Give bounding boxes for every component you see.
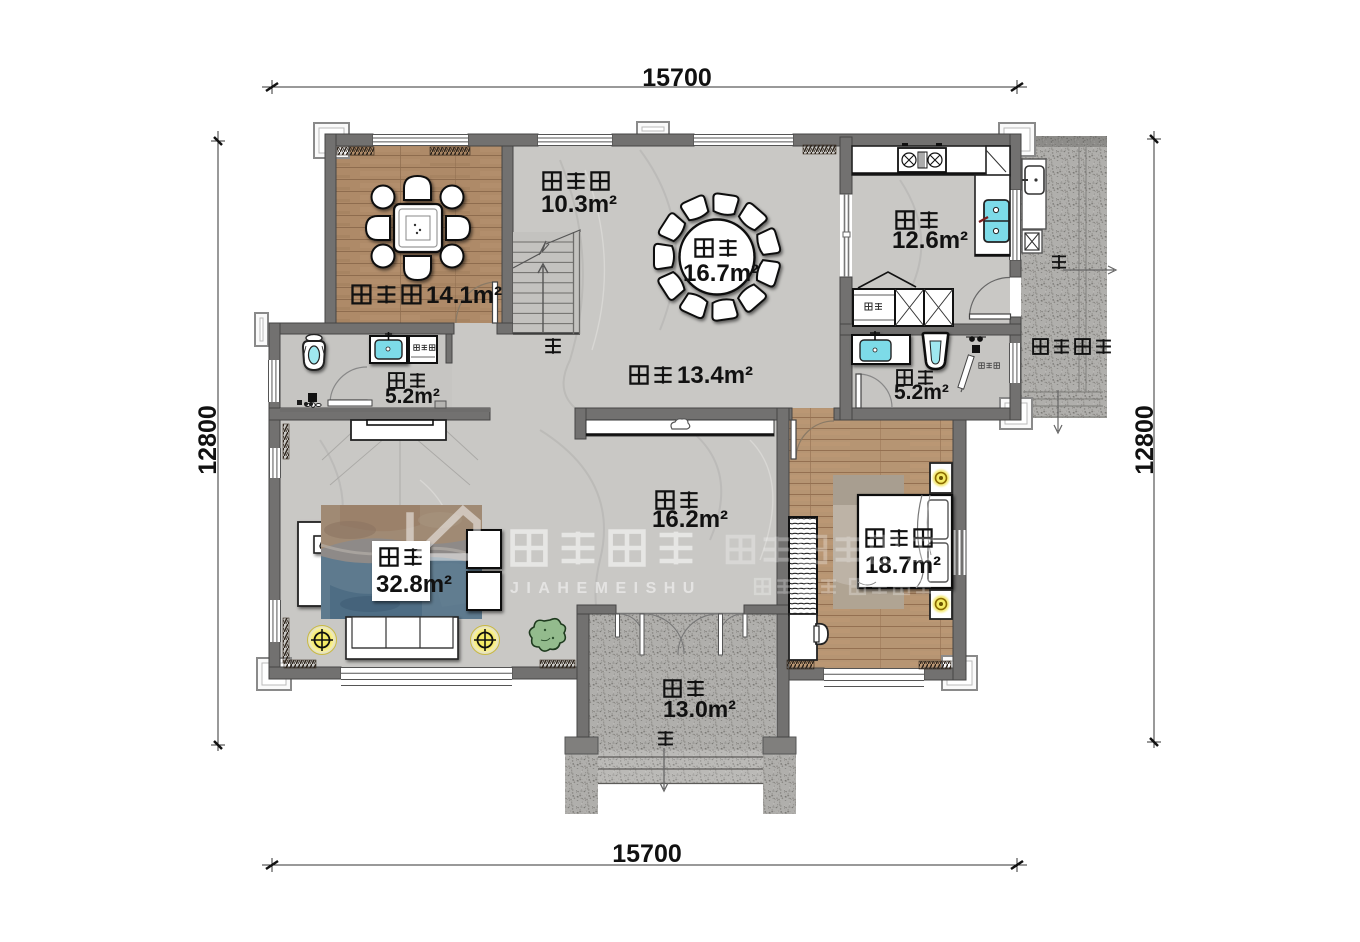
svg-text:18.7m²: 18.7m² <box>865 552 941 579</box>
svg-text:5.2m²: 5.2m² <box>385 385 440 408</box>
svg-text:13.0m²: 13.0m² <box>663 696 736 722</box>
svg-text:10.3m²: 10.3m² <box>541 191 617 218</box>
svg-text:13.4m²: 13.4m² <box>677 362 753 389</box>
svg-text:14.1m²: 14.1m² <box>426 282 502 309</box>
svg-text:12800: 12800 <box>1131 405 1159 475</box>
svg-text:16.7m²: 16.7m² <box>683 260 759 287</box>
svg-text:32.8m²: 32.8m² <box>376 571 452 598</box>
svg-text:12.6m²: 12.6m² <box>892 227 968 254</box>
svg-text:12800: 12800 <box>194 405 222 475</box>
svg-text:5.2m²: 5.2m² <box>894 381 949 404</box>
svg-text:15700: 15700 <box>612 840 682 868</box>
svg-text:16.2m²: 16.2m² <box>652 506 728 533</box>
svg-text:15700: 15700 <box>642 64 712 92</box>
svg-text:JIAHEMEISHU: JIAHEMEISHU <box>510 580 702 597</box>
